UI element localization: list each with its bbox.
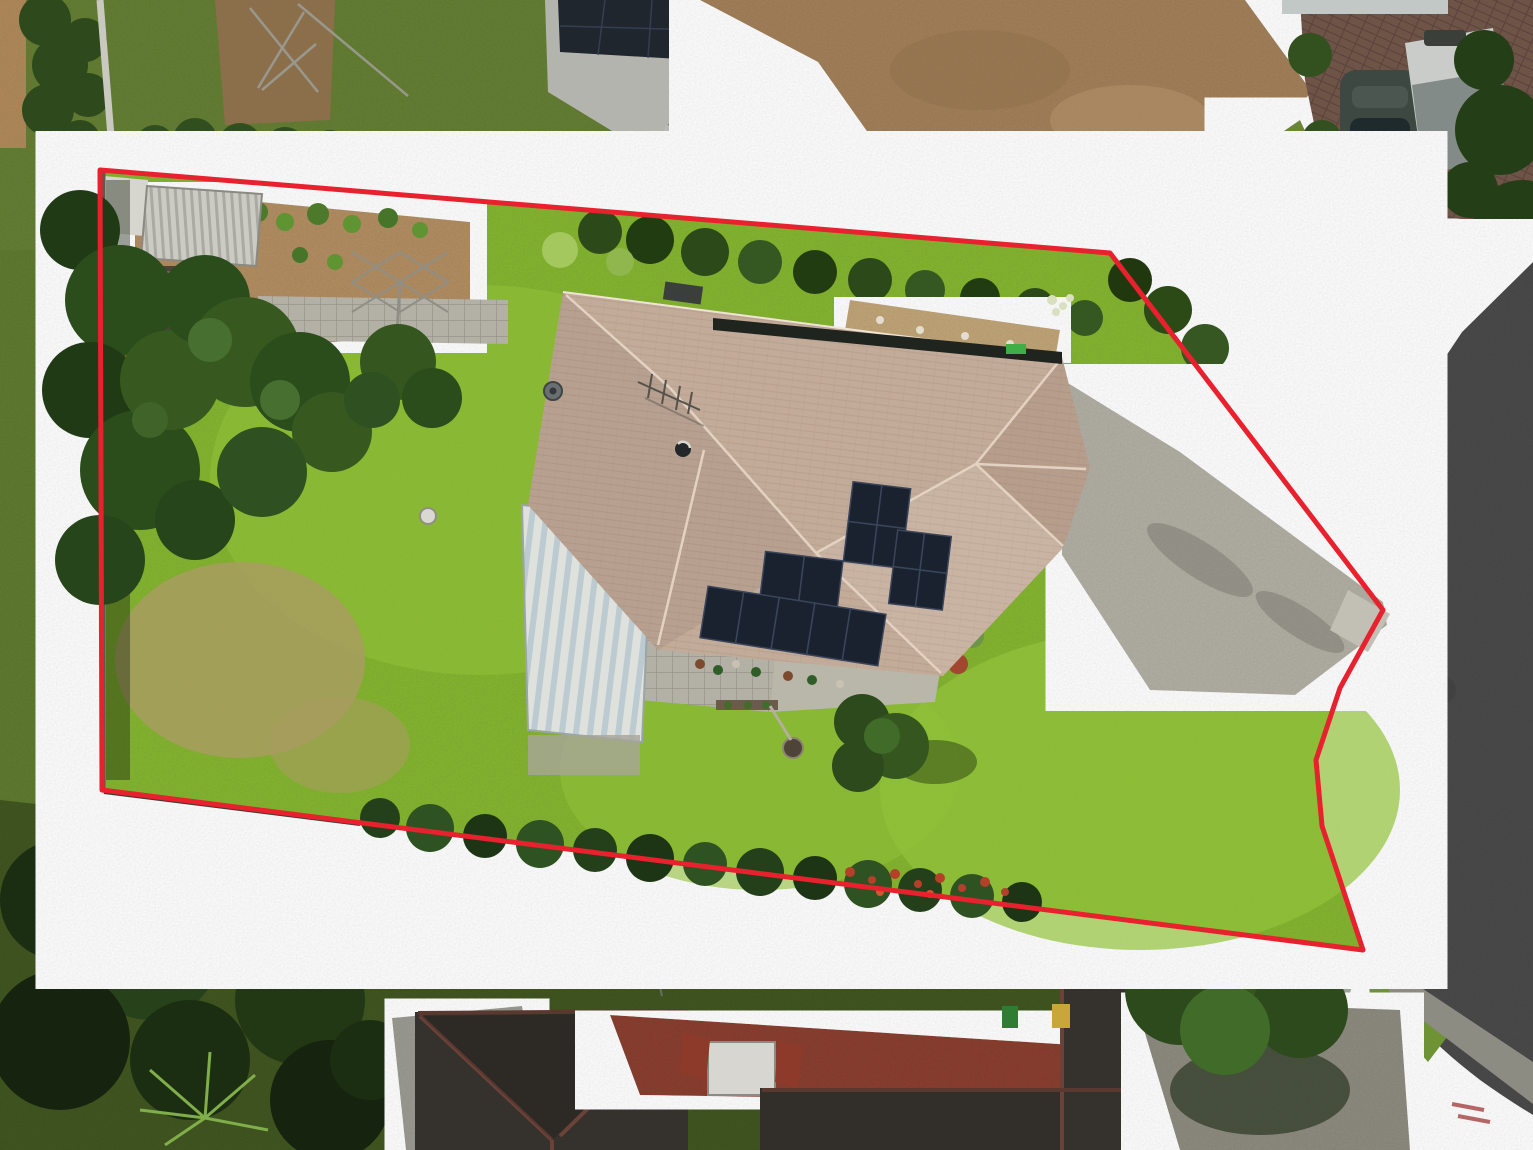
garden-shed — [141, 186, 262, 266]
green-wheelie-bin — [1002, 1006, 1018, 1028]
dark-parked-car — [1340, 70, 1420, 197]
road-blotch — [1404, 672, 1456, 708]
distant-roof-strip — [1282, 0, 1448, 14]
solar-array-right — [889, 530, 952, 610]
yellow-wheelie-bin — [1052, 1004, 1070, 1028]
garage-slab — [528, 735, 640, 775]
silver-parked-car — [1387, 218, 1473, 347]
bird-bath — [420, 508, 436, 524]
aerial-photo — [0, 0, 1533, 1150]
green-bin-behind-roof — [1006, 344, 1026, 354]
roof-vent — [675, 441, 691, 457]
fire-pit — [783, 738, 803, 758]
